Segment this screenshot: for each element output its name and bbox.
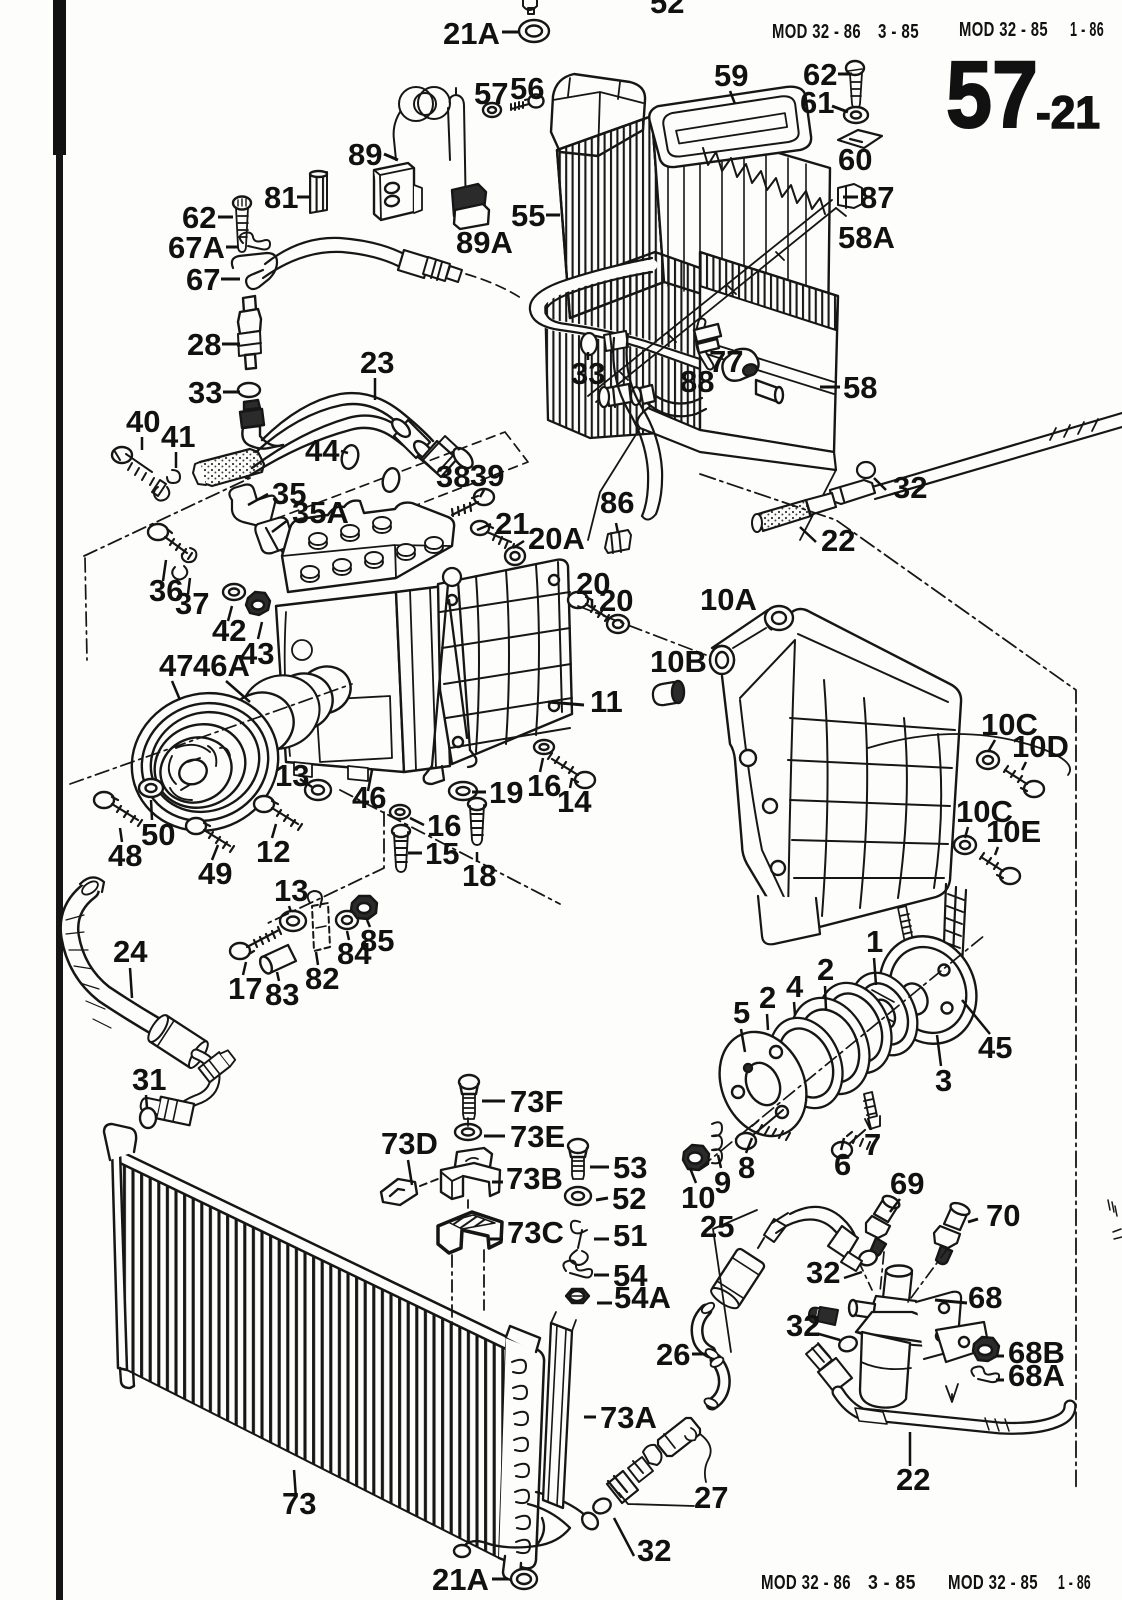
svg-text:17: 17: [228, 971, 262, 1006]
svg-text:45: 45: [978, 1030, 1012, 1065]
svg-text:21A: 21A: [432, 1562, 489, 1597]
svg-text:83: 83: [265, 977, 299, 1012]
svg-text:61: 61: [800, 85, 834, 120]
svg-text:9: 9: [714, 1165, 731, 1200]
svg-text:MOD 32 - 86: MOD 32 - 86: [761, 1572, 851, 1594]
svg-text:41: 41: [161, 419, 195, 454]
svg-text:85: 85: [360, 923, 394, 958]
svg-text:56: 56: [510, 71, 544, 106]
svg-text:69: 69: [890, 1166, 924, 1201]
svg-text:2: 2: [817, 952, 834, 987]
svg-text:54A: 54A: [614, 1280, 671, 1315]
svg-text:47: 47: [159, 648, 193, 683]
svg-text:33: 33: [571, 356, 605, 391]
svg-text:57: 57: [474, 76, 508, 111]
svg-text:15: 15: [425, 836, 459, 871]
svg-text:27: 27: [694, 1480, 728, 1515]
svg-text:26: 26: [656, 1337, 690, 1372]
svg-text:48: 48: [108, 838, 142, 873]
svg-text:67A: 67A: [168, 230, 225, 265]
svg-text:73C: 73C: [507, 1215, 564, 1250]
svg-text:MOD 32 - 85: MOD 32 - 85: [948, 1572, 1038, 1594]
svg-text:20: 20: [599, 583, 633, 618]
svg-text:8: 8: [738, 1150, 755, 1185]
svg-text:52: 52: [650, 0, 684, 20]
svg-text:82: 82: [305, 961, 339, 996]
svg-text:1 - 86: 1 - 86: [1058, 1572, 1091, 1594]
svg-text:55: 55: [511, 198, 545, 233]
svg-text:32: 32: [806, 1255, 840, 1290]
svg-text:44: 44: [305, 433, 340, 468]
svg-text:37: 37: [175, 586, 209, 621]
svg-text:28: 28: [187, 327, 221, 362]
svg-text:14: 14: [557, 784, 592, 819]
svg-text:89: 89: [348, 137, 382, 172]
svg-text:-21: -21: [1036, 87, 1100, 138]
svg-text:52: 52: [612, 1181, 646, 1216]
svg-text:MOD 32 - 85: MOD 32 - 85: [959, 19, 1048, 41]
svg-text:10E: 10E: [986, 814, 1041, 849]
svg-text:88: 88: [680, 364, 714, 399]
svg-text:3 - 85: 3 - 85: [868, 1572, 916, 1594]
svg-text:57: 57: [946, 42, 1038, 148]
svg-text:1 - 86: 1 - 86: [1070, 19, 1104, 41]
svg-text:5: 5: [733, 995, 750, 1030]
svg-text:23: 23: [360, 345, 394, 380]
svg-text:32: 32: [637, 1533, 671, 1568]
svg-text:13: 13: [274, 873, 308, 908]
svg-text:89A: 89A: [456, 225, 513, 260]
svg-text:60: 60: [838, 142, 872, 177]
svg-text:73E: 73E: [510, 1119, 565, 1154]
svg-text:25: 25: [700, 1209, 734, 1244]
svg-text:49: 49: [198, 856, 232, 891]
svg-text:59: 59: [714, 58, 748, 93]
svg-text:31: 31: [132, 1062, 166, 1097]
svg-text:73F: 73F: [510, 1084, 563, 1119]
svg-text:73D: 73D: [381, 1126, 438, 1161]
svg-text:MOD 32 - 86: MOD 32 - 86: [772, 21, 861, 43]
svg-text:73: 73: [282, 1486, 316, 1521]
svg-text:12: 12: [256, 834, 290, 869]
svg-text:58: 58: [843, 370, 877, 405]
svg-text:81: 81: [264, 180, 298, 215]
svg-text:19: 19: [489, 775, 523, 810]
svg-text:73B: 73B: [506, 1161, 563, 1196]
svg-text:11: 11: [590, 684, 623, 719]
svg-text:6: 6: [834, 1147, 851, 1182]
svg-text:86: 86: [600, 485, 634, 520]
svg-text:4: 4: [786, 969, 804, 1004]
svg-text:53: 53: [613, 1150, 647, 1185]
svg-text:2: 2: [759, 980, 776, 1015]
svg-text:24: 24: [113, 934, 148, 969]
svg-text:35A: 35A: [292, 495, 349, 530]
svg-text:32: 32: [893, 470, 927, 505]
svg-text:87: 87: [860, 180, 894, 215]
svg-text:33: 33: [188, 375, 222, 410]
svg-text:68A: 68A: [1008, 1358, 1065, 1393]
svg-text:20A: 20A: [528, 521, 585, 556]
svg-text:73A: 73A: [600, 1400, 657, 1435]
svg-text:50: 50: [141, 817, 175, 852]
svg-text:51: 51: [613, 1218, 647, 1253]
svg-text:46A: 46A: [193, 648, 250, 683]
svg-text:32: 32: [786, 1308, 820, 1343]
svg-text:68: 68: [968, 1280, 1002, 1315]
svg-text:10D: 10D: [1012, 729, 1069, 764]
svg-text:13: 13: [275, 758, 309, 793]
svg-text:40: 40: [126, 404, 160, 439]
svg-text:18: 18: [462, 858, 496, 893]
svg-text:10A: 10A: [700, 582, 757, 617]
svg-text:7: 7: [864, 1127, 881, 1162]
svg-text:21: 21: [495, 506, 529, 541]
svg-text:58A: 58A: [838, 220, 895, 255]
svg-text:22: 22: [896, 1462, 930, 1497]
svg-text:1: 1: [866, 924, 883, 959]
svg-text:3 - 85: 3 - 85: [878, 21, 919, 43]
svg-text:70: 70: [986, 1198, 1020, 1233]
svg-text:21A: 21A: [443, 16, 500, 51]
svg-text:39: 39: [470, 458, 504, 493]
svg-text:38: 38: [436, 459, 470, 494]
svg-text:10B: 10B: [650, 644, 707, 679]
svg-text:16: 16: [527, 768, 561, 803]
svg-text:22: 22: [821, 523, 855, 558]
svg-text:67: 67: [186, 262, 220, 297]
svg-text:3: 3: [935, 1063, 952, 1098]
